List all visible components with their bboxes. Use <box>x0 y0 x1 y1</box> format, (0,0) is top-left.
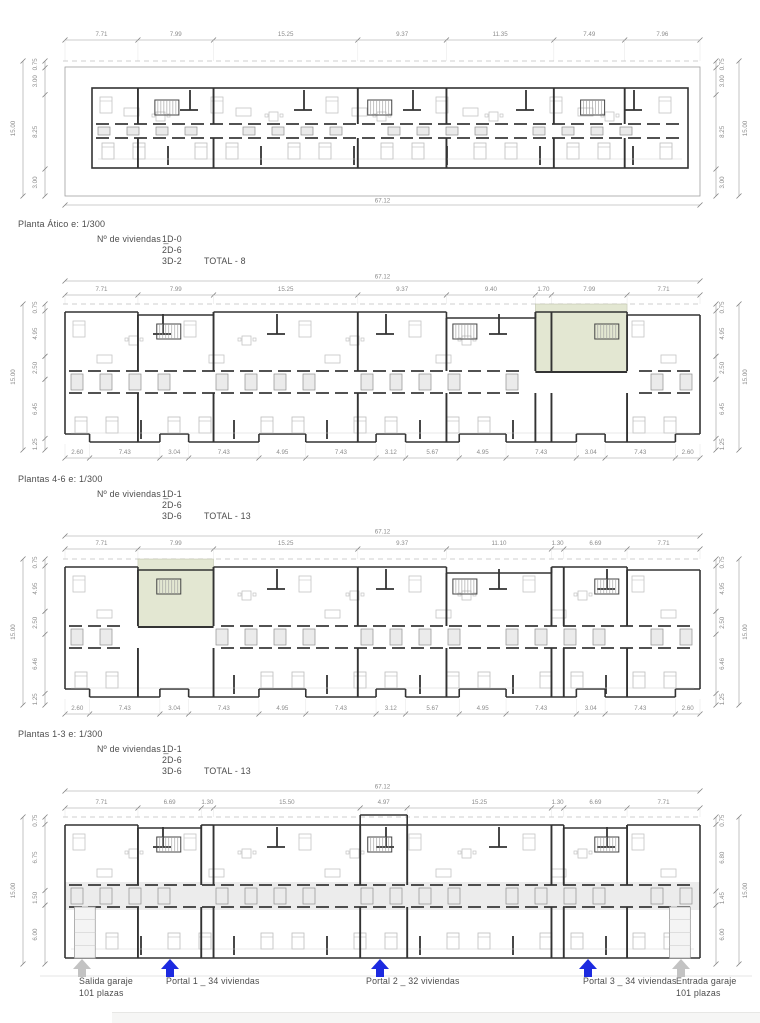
portal-2-label: Portal 2 _ 32 viviendas <box>366 976 460 988</box>
svg-text:2.50: 2.50 <box>719 616 726 629</box>
svg-text:7.96: 7.96 <box>656 31 669 38</box>
svg-text:7.99: 7.99 <box>583 286 596 293</box>
svg-text:0.75: 0.75 <box>32 556 39 569</box>
total-label: TOTAL - 13 <box>204 766 251 776</box>
svg-text:67.12: 67.12 <box>375 784 391 791</box>
svg-text:7.71: 7.71 <box>95 799 108 806</box>
svg-text:3.04: 3.04 <box>168 449 181 456</box>
svg-text:7.71: 7.71 <box>95 31 108 38</box>
svg-text:4.95: 4.95 <box>32 582 39 595</box>
svg-text:9.37: 9.37 <box>396 540 409 547</box>
svg-text:7.49: 7.49 <box>583 31 596 38</box>
plan-title: Plantas 1-3 e: 1/300 <box>18 729 103 739</box>
drawing-sheet: 7.717.9915.259.3711.357.497.9667.120.753… <box>0 0 760 1023</box>
svg-text:6.75: 6.75 <box>32 851 39 864</box>
svg-text:6.00: 6.00 <box>719 928 726 941</box>
svg-text:2.60: 2.60 <box>682 449 695 456</box>
svg-text:3.00: 3.00 <box>32 75 39 88</box>
svg-text:1.50: 1.50 <box>32 891 39 904</box>
svg-text:7.43: 7.43 <box>335 449 348 456</box>
next-sheet-edge <box>112 1012 760 1023</box>
svg-text:2.50: 2.50 <box>32 616 39 629</box>
svg-text:15.00: 15.00 <box>10 120 17 136</box>
svg-text:5.67: 5.67 <box>426 449 439 456</box>
unit-count: 2D-6 <box>162 500 182 510</box>
svg-text:7.71: 7.71 <box>658 286 671 293</box>
svg-text:15.00: 15.00 <box>10 882 17 898</box>
svg-text:8.25: 8.25 <box>719 125 726 138</box>
svg-text:7.43: 7.43 <box>535 705 548 712</box>
svg-text:1.25: 1.25 <box>32 438 39 451</box>
unit-count: 2D-6 <box>162 245 182 255</box>
svg-text:1.25: 1.25 <box>719 438 726 451</box>
svg-text:1.30: 1.30 <box>552 540 565 547</box>
floor-plans-drawing: 7.717.9915.259.3711.357.497.9667.120.753… <box>0 0 760 1023</box>
svg-text:3.04: 3.04 <box>585 705 598 712</box>
svg-text:7.99: 7.99 <box>170 540 183 547</box>
svg-text:1.25: 1.25 <box>719 693 726 706</box>
svg-text:2.50: 2.50 <box>32 361 39 374</box>
svg-text:4.95: 4.95 <box>276 705 289 712</box>
svg-text:0.75: 0.75 <box>719 301 726 314</box>
svg-text:6.80: 6.80 <box>719 851 726 864</box>
svg-text:6.69: 6.69 <box>589 540 602 547</box>
svg-text:4.95: 4.95 <box>477 705 490 712</box>
svg-text:4.95: 4.95 <box>719 582 726 595</box>
unit-count: 3D-2 <box>162 256 182 266</box>
svg-text:4.97: 4.97 <box>378 799 391 806</box>
svg-text:15.25: 15.25 <box>472 799 488 806</box>
svg-text:7.71: 7.71 <box>95 540 108 547</box>
svg-text:0.75: 0.75 <box>32 58 39 71</box>
svg-text:7.43: 7.43 <box>535 449 548 456</box>
svg-text:3.00: 3.00 <box>719 176 726 189</box>
svg-text:3.04: 3.04 <box>585 449 598 456</box>
svg-text:15.00: 15.00 <box>742 369 749 385</box>
svg-text:7.71: 7.71 <box>658 799 671 806</box>
portal-1-label: Portal 1 _ 34 viviendas <box>166 976 260 988</box>
svg-text:4.95: 4.95 <box>477 449 490 456</box>
svg-text:6.45: 6.45 <box>32 402 39 415</box>
unit-count: 1D-1 <box>162 489 182 499</box>
svg-text:7.43: 7.43 <box>335 705 348 712</box>
svg-text:9.40: 9.40 <box>485 286 498 293</box>
svg-text:6.46: 6.46 <box>32 657 39 670</box>
svg-text:3.00: 3.00 <box>32 176 39 189</box>
svg-text:0.75: 0.75 <box>32 814 39 827</box>
svg-text:15.25: 15.25 <box>278 286 294 293</box>
svg-text:11.10: 11.10 <box>491 540 507 547</box>
svg-text:6.46: 6.46 <box>719 657 726 670</box>
svg-text:9.37: 9.37 <box>396 31 409 38</box>
svg-text:3.00: 3.00 <box>719 75 726 88</box>
svg-text:15.00: 15.00 <box>10 624 17 640</box>
viviendas-prefix: Nº de viviendas _ <box>97 234 169 244</box>
svg-text:1.45: 1.45 <box>719 892 726 905</box>
svg-text:0.75: 0.75 <box>719 556 726 569</box>
svg-text:15.00: 15.00 <box>742 624 749 640</box>
portal-3-label: Portal 3 _ 34 viviendas <box>583 976 677 988</box>
svg-text:1.30: 1.30 <box>552 799 565 806</box>
svg-text:4.95: 4.95 <box>32 327 39 340</box>
svg-text:3.12: 3.12 <box>385 449 398 456</box>
unit-count: 2D-6 <box>162 755 182 765</box>
svg-text:0.75: 0.75 <box>32 301 39 314</box>
svg-text:1.70: 1.70 <box>537 286 550 293</box>
svg-text:4.95: 4.95 <box>719 327 726 340</box>
unit-count: 1D-0 <box>162 234 182 244</box>
svg-text:2.60: 2.60 <box>682 705 695 712</box>
svg-text:8.25: 8.25 <box>32 125 39 138</box>
unit-count: 1D-1 <box>162 744 182 754</box>
svg-text:4.95: 4.95 <box>276 449 289 456</box>
garage-exit-label: Salida garaje101 plazas <box>79 976 133 999</box>
svg-text:0.75: 0.75 <box>719 814 726 827</box>
svg-text:2.60: 2.60 <box>71 705 84 712</box>
svg-text:7.99: 7.99 <box>170 286 183 293</box>
viviendas-prefix: Nº de viviendas _ <box>97 744 169 754</box>
svg-text:9.37: 9.37 <box>396 286 409 293</box>
svg-text:15.25: 15.25 <box>278 31 294 38</box>
total-label: TOTAL - 8 <box>204 256 246 266</box>
svg-text:7.43: 7.43 <box>634 449 647 456</box>
svg-text:15.00: 15.00 <box>742 882 749 898</box>
plan-title: Plantas 4-6 e: 1/300 <box>18 474 103 484</box>
svg-text:6.69: 6.69 <box>589 799 602 806</box>
svg-text:7.43: 7.43 <box>119 705 132 712</box>
svg-text:1.30: 1.30 <box>201 799 214 806</box>
svg-text:15.50: 15.50 <box>279 799 295 806</box>
svg-text:5.67: 5.67 <box>426 705 439 712</box>
svg-text:11.35: 11.35 <box>493 31 509 38</box>
svg-text:6.00: 6.00 <box>32 928 39 941</box>
svg-text:7.71: 7.71 <box>658 540 671 547</box>
svg-text:2.60: 2.60 <box>71 449 84 456</box>
plan-title: Planta Ático e: 1/300 <box>18 219 105 229</box>
svg-text:2.50: 2.50 <box>719 361 726 374</box>
unit-count: 3D-6 <box>162 511 182 521</box>
svg-text:3.12: 3.12 <box>385 705 398 712</box>
svg-text:67.12: 67.12 <box>375 529 391 536</box>
viviendas-prefix: Nº de viviendas _ <box>97 489 169 499</box>
svg-text:7.43: 7.43 <box>634 705 647 712</box>
svg-text:7.99: 7.99 <box>170 31 183 38</box>
svg-text:6.45: 6.45 <box>719 402 726 415</box>
svg-text:0.75: 0.75 <box>719 58 726 71</box>
svg-text:15.25: 15.25 <box>278 540 294 547</box>
svg-text:15.00: 15.00 <box>10 369 17 385</box>
unit-count: 3D-6 <box>162 766 182 776</box>
svg-text:7.43: 7.43 <box>119 449 132 456</box>
svg-text:1.25: 1.25 <box>32 693 39 706</box>
svg-text:15.00: 15.00 <box>742 120 749 136</box>
total-label: TOTAL - 13 <box>204 511 251 521</box>
svg-text:6.69: 6.69 <box>164 799 177 806</box>
svg-text:7.71: 7.71 <box>95 286 108 293</box>
svg-text:67.12: 67.12 <box>375 274 391 281</box>
svg-text:3.04: 3.04 <box>168 705 181 712</box>
svg-text:7.43: 7.43 <box>218 449 231 456</box>
garage-entry-label: Entrada garaje101 plazas <box>676 976 737 999</box>
svg-text:7.43: 7.43 <box>218 705 231 712</box>
svg-text:67.12: 67.12 <box>375 198 391 205</box>
